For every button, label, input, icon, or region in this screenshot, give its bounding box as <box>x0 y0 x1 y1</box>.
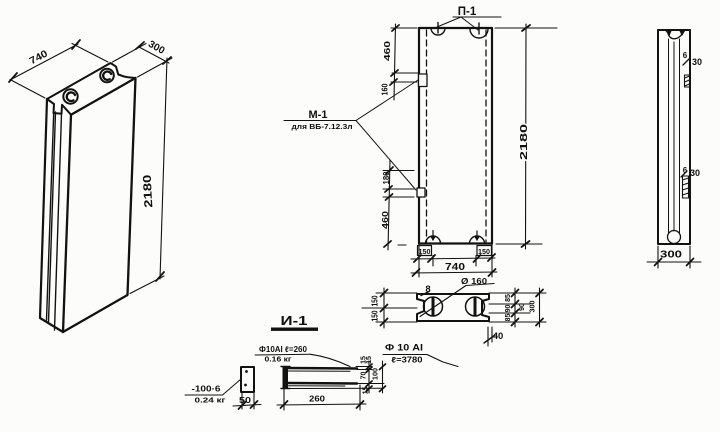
svg-text:150: 150 <box>478 247 490 256</box>
svg-text:15: 15 <box>366 356 373 364</box>
svg-text:460: 460 <box>382 41 392 61</box>
svg-text:90: 90 <box>519 303 526 311</box>
svg-text:6: 6 <box>683 166 688 175</box>
svg-text:160: 160 <box>381 83 390 95</box>
svg-text:6: 6 <box>683 51 688 60</box>
svg-text:460: 460 <box>380 211 390 229</box>
svg-text:90: 90 <box>505 305 512 313</box>
svg-text:30: 30 <box>692 57 702 67</box>
svg-text:ℓ=3780: ℓ=3780 <box>392 356 424 365</box>
svg-text:15: 15 <box>363 387 370 395</box>
svg-text:0.16 кг: 0.16 кг <box>265 357 292 364</box>
svg-text:150: 150 <box>371 310 380 321</box>
svg-text:740: 740 <box>445 261 465 273</box>
svg-text:для ВБ-7.12.3л: для ВБ-7.12.3л <box>292 122 353 131</box>
svg-text:150: 150 <box>371 295 380 306</box>
svg-text:Ø 160: Ø 160 <box>461 276 487 286</box>
svg-text:30: 30 <box>690 168 700 178</box>
svg-text:40: 40 <box>493 331 504 342</box>
svg-text:8: 8 <box>425 284 430 295</box>
svg-text:300: 300 <box>528 301 537 313</box>
svg-text:-100·6: -100·6 <box>192 385 222 394</box>
svg-text:85: 85 <box>505 294 512 302</box>
svg-text:0.24 кг: 0.24 кг <box>195 396 226 405</box>
svg-text:2180: 2180 <box>142 174 156 208</box>
svg-text:2180: 2180 <box>518 124 530 160</box>
svg-text:70: 70 <box>361 372 368 380</box>
svg-text:300: 300 <box>660 250 683 261</box>
svg-text:85: 85 <box>505 314 512 322</box>
svg-text:260: 260 <box>309 394 325 404</box>
svg-text:Ф10АI ℓ=260: Ф10АI ℓ=260 <box>259 345 307 354</box>
svg-text:И-1: И-1 <box>281 314 308 328</box>
svg-text:П-1: П-1 <box>458 6 477 18</box>
svg-text:М-1: М-1 <box>309 109 328 121</box>
svg-text:150: 150 <box>419 247 431 256</box>
svg-text:100: 100 <box>371 368 380 380</box>
svg-text:50: 50 <box>239 395 251 405</box>
svg-text:180: 180 <box>382 171 391 185</box>
svg-text:Ф 10 АI: Ф 10 АI <box>385 343 423 354</box>
